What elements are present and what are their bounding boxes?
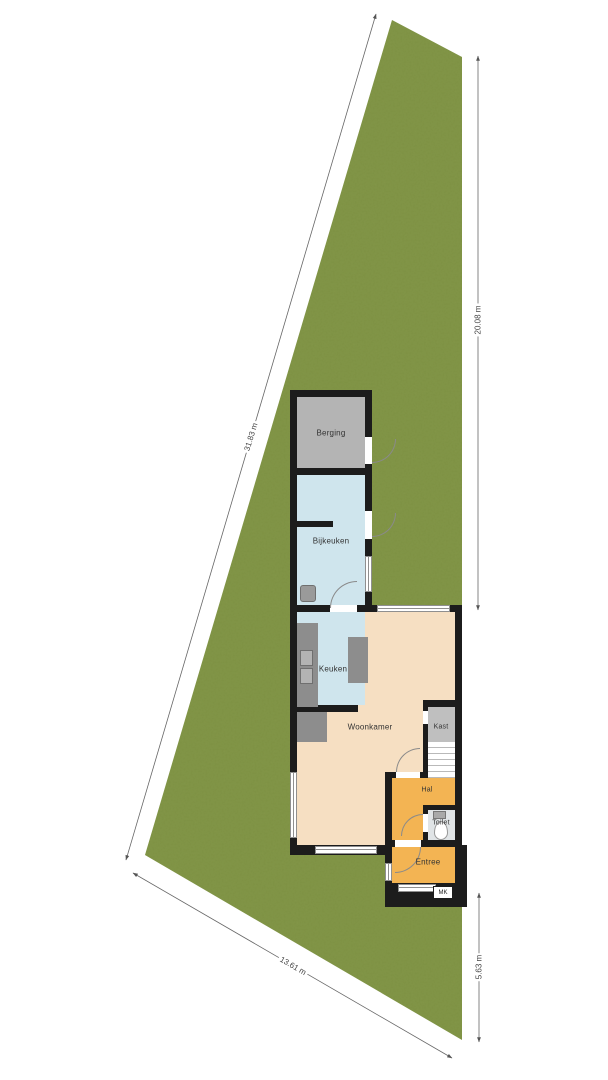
floorplan-canvas: MK Berging Bijkeuken Keuken Woonkamer Ka… [0,0,608,1080]
berging-door-opening [365,437,372,464]
toilet-door-opening [423,814,428,832]
room-label-bijkeuken: Bijkeuken [313,537,350,546]
kitchen-island [348,637,368,683]
woonkamer-west-window [290,772,297,838]
dimension-label-bottom-right: 5.63 m [475,953,484,981]
room-label-hal: Hal [421,787,432,794]
wall-bijkeuken-stub [297,521,333,527]
room-label-kast: Kast [434,724,449,731]
sink [433,811,446,819]
cabinet [297,712,327,742]
stove-bottom [300,668,313,684]
staircase [428,742,455,778]
dimension-label-right: 20.08 m [474,304,483,337]
washing-machine [300,585,316,602]
stove-top [300,650,313,666]
entree-door-opening [395,840,421,847]
room-label-toilet: Toilet [432,820,450,827]
entree-south-window [398,884,436,892]
room-label-woonkamer: Woonkamer [348,723,393,732]
room-mk: MK [433,886,453,899]
room-label-keuken: Keuken [319,665,347,674]
bijkeuken-window [365,556,372,592]
room-label-berging: Berging [317,429,346,438]
woonkamer-north-window [377,605,450,612]
wall-kast-north [423,700,455,707]
entree-west-window [385,863,392,881]
woonkamer-south-window [315,846,377,854]
room-label-entree: Entree [416,858,441,867]
room-label-mk: MK [439,890,448,896]
bijkeuken-door-opening [365,511,372,539]
